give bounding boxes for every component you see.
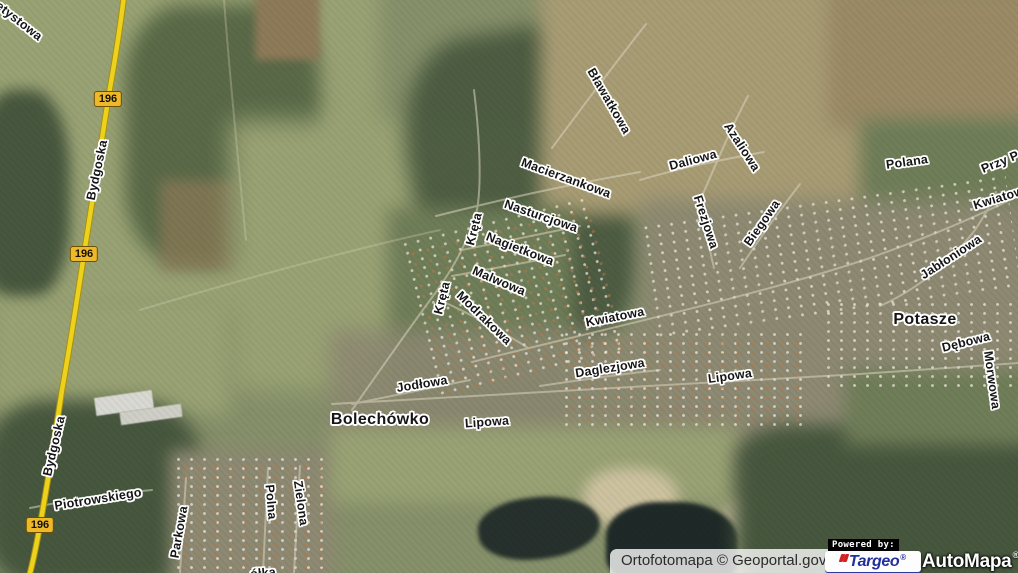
street-label: Przy P	[979, 148, 1018, 176]
street-label: Bławatkowa	[585, 66, 634, 137]
automapa-wordmark: AutoMapa	[922, 551, 1011, 573]
targeo-logo[interactable]: Targeo ®	[825, 551, 921, 572]
street-label: Lipowa	[464, 413, 509, 430]
street-label: Polna	[262, 484, 279, 520]
targeo-quote-icon	[840, 554, 848, 562]
street-label: Macierzankowa	[519, 155, 612, 200]
map-viewport[interactable]: etystowaBydgoskaBydgoskaBławatkowaMacier…	[0, 0, 1018, 573]
street-label: Modrakowa	[454, 288, 514, 347]
street-labels-layer: etystowaBydgoskaBydgoskaBławatkowaMacier…	[0, 0, 1018, 573]
place-label: Potasze	[893, 311, 956, 329]
street-label: Kręta	[463, 211, 485, 246]
powered-by-badge: Powered by:	[828, 539, 899, 551]
road-number-badge: 196	[94, 91, 122, 107]
street-label: Lipowa	[707, 366, 753, 386]
street-label: Bydgoska	[40, 415, 67, 478]
place-label: Bolechówko	[331, 411, 429, 429]
road-number-badge: 196	[70, 246, 98, 262]
street-label: Parkowa	[168, 505, 191, 559]
road-number-badge: 196	[26, 517, 54, 533]
street-label: Frezjowa	[691, 194, 721, 251]
automapa-logo[interactable]: AutoMapa ®	[922, 551, 1018, 573]
attribution-bar: Ortofotomapa © Geoportal.gov.pl	[610, 549, 852, 573]
street-label: Jodłowa	[396, 373, 449, 395]
street-label: Nasturcjowa	[503, 197, 580, 235]
street-label: Kręta	[431, 280, 453, 315]
street-label: Jabłoniowa	[918, 232, 984, 282]
street-label: Kwiatowa	[972, 182, 1018, 213]
attribution-text: Ortofotomapa © Geoportal.gov.pl	[621, 552, 841, 569]
street-label: Bydgoska	[84, 139, 110, 202]
targeo-registered-mark: ®	[900, 553, 906, 562]
street-label: etystowa	[0, 0, 45, 43]
street-label: Kwiatowa	[585, 304, 646, 329]
street-label: Piotrowskiego	[53, 485, 142, 513]
street-label: Nagietkowa	[484, 230, 556, 269]
street-label: ółka	[250, 565, 277, 573]
street-label: Zielona	[291, 480, 311, 527]
street-label: Daglezjowa	[574, 356, 645, 381]
street-label: Morwowa	[981, 350, 1003, 410]
street-label: Daliowa	[668, 147, 719, 173]
street-label: Azaliowa	[721, 120, 763, 174]
automapa-registered-mark: ®	[1012, 550, 1018, 560]
street-label: Biegowa	[741, 197, 783, 248]
targeo-wordmark: Targeo	[849, 553, 899, 571]
street-label: Polana	[885, 152, 929, 172]
street-label: Malwowa	[470, 264, 527, 299]
